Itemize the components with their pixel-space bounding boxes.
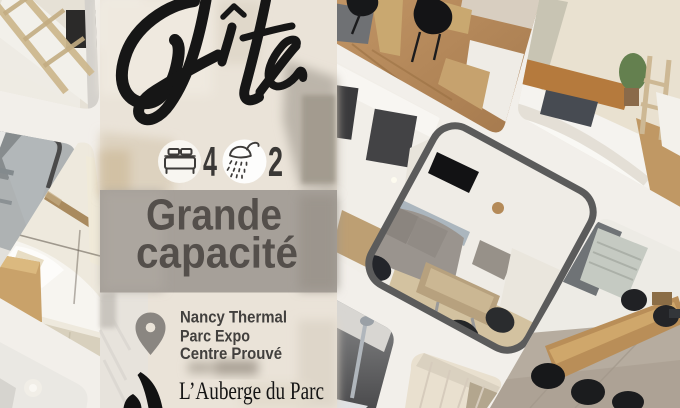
svg-text:L’Auberge du Parc: L’Auberge du Parc [179,378,324,405]
svg-text:Nancy Thermal: Nancy Thermal [180,308,287,326]
svg-text:capacité: capacité [136,229,298,278]
svg-text:2: 2 [268,138,283,185]
svg-text:4: 4 [203,138,217,185]
svg-text:Centre Prouvé: Centre Prouvé [180,345,282,363]
svg-text:Parc Expo: Parc Expo [180,328,250,346]
